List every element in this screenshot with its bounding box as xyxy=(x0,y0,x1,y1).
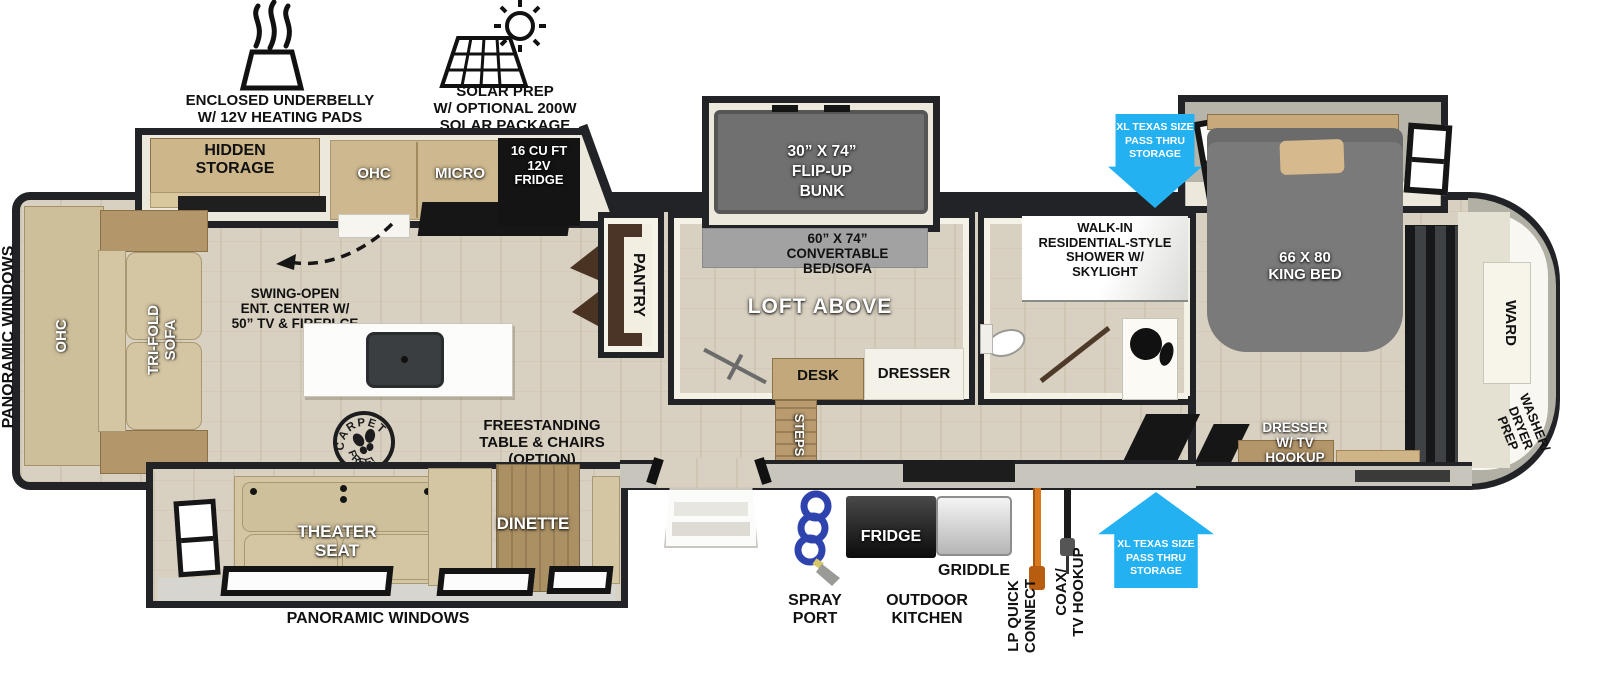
spray-port-label: SPRAY PORT xyxy=(770,592,860,628)
coax-label: COAX/ TV HOOKUP xyxy=(1054,532,1094,652)
entry-step-1 xyxy=(674,502,748,516)
micro-label: MICRO xyxy=(418,166,502,183)
theater-line2: SEAT xyxy=(282,541,392,560)
island-faucet xyxy=(401,356,408,363)
coax-line2: TV HOOKUP xyxy=(1071,532,1088,652)
sofa-back xyxy=(98,250,126,432)
pantry-label: PANTRY xyxy=(623,225,647,345)
trifold-line1: TRI-FOLD xyxy=(146,265,163,415)
slideout-side-window xyxy=(173,499,220,578)
swing-arrow-icon xyxy=(268,216,398,278)
pass-thru-line3: STORAGE xyxy=(1098,565,1214,579)
swing-line1: SWING-OPEN xyxy=(205,286,385,301)
dresser-tv-label: DRESSER W/ TV HOOKUP xyxy=(1235,420,1355,465)
pass-thru-line2: PASS THRU xyxy=(1098,552,1214,566)
panoramic-windows-left-label: PANORAMIC WINDOWS xyxy=(0,222,20,452)
sofa-end-table-top xyxy=(100,210,208,252)
loft-above-label: LOFT ABOVE xyxy=(735,295,905,319)
panoramic-window-3 xyxy=(547,566,614,594)
heating-pads-icon xyxy=(222,0,322,95)
bunk-line2: FLIP-UP xyxy=(752,162,892,182)
outdoor-fridge-label: FRIDGE xyxy=(848,528,934,546)
shower-line2: RESIDENTIAL-STYLE xyxy=(1026,236,1184,251)
convertible-line1: 60” X 74” xyxy=(740,231,935,246)
freestanding-line2: TABLE & CHAIRS xyxy=(457,435,627,452)
king-bed-label: 66 X 80 KING BED xyxy=(1240,250,1370,284)
bunk-line3: BUNK xyxy=(752,182,892,202)
underbelly-label: ENCLOSED UNDERBELLY W/ 12V HEATING PADS xyxy=(160,93,400,127)
freestanding-line1: FREESTANDING xyxy=(457,418,627,435)
bedroom-window-right xyxy=(1404,123,1453,196)
dresser-tv-line2: W/ TV xyxy=(1235,435,1355,450)
pass-thru-line3: STORAGE xyxy=(1108,148,1202,162)
cupholder-3 xyxy=(340,496,347,503)
fridge-line2: 12V xyxy=(498,159,580,174)
king-line1: 66 X 80 xyxy=(1240,250,1370,267)
loft-dresser-label: DRESSER xyxy=(866,366,962,383)
ent-center-doors-icon xyxy=(568,246,600,334)
fridge-line1: 16 CU FT xyxy=(498,144,580,159)
outdoor-fridge xyxy=(846,496,936,558)
underbelly-line1: ENCLOSED UNDERBELLY xyxy=(160,93,400,110)
coax-line1: COAX/ xyxy=(1054,532,1071,652)
underbelly-line2: W/ 12V HEATING PADS xyxy=(160,110,400,127)
outdoor-kitchen-line1: OUTDOOR xyxy=(862,592,992,610)
lp-line2: CONNECT xyxy=(1023,541,1040,685)
cupholder-1 xyxy=(250,488,257,495)
lp-line1: LP QUICK xyxy=(1006,541,1023,685)
solar-line2: W/ OPTIONAL 200W xyxy=(410,101,600,118)
shower-label: WALK-IN RESIDENTIAL-STYLE SHOWER W/ SKYL… xyxy=(1026,221,1184,279)
king-line2: KING BED xyxy=(1240,267,1370,284)
pass-thru-line1: XL TEXAS SIZE xyxy=(1108,121,1202,135)
bed-pillow xyxy=(1279,139,1344,175)
fridge-label: 16 CU FT 12V FRIDGE xyxy=(498,144,580,188)
dresser-tv-line1: DRESSER xyxy=(1235,420,1355,435)
hidden-storage-label: HIDDEN STORAGE xyxy=(155,142,315,178)
pass-thru-line2: PASS THRU xyxy=(1108,135,1202,149)
pantry-shelf-side xyxy=(608,228,624,342)
ohc-kitchen-label: OHC xyxy=(334,166,414,183)
trifold-sofa-label: TRI-FOLD SOFA xyxy=(146,265,180,415)
spray-line1: SPRAY xyxy=(770,592,860,610)
dinette-label: DINETTE xyxy=(468,514,598,533)
outdoor-kitchen-label: OUTDOOR KITCHEN xyxy=(862,592,992,628)
theater-seat-label: THEATER SEAT xyxy=(282,522,392,560)
pass-thru-arrow-bottom: XL TEXAS SIZE PASS THRU STORAGE xyxy=(1098,492,1214,588)
solar-label: SOLAR PREP W/ OPTIONAL 200W SOLAR PACKAG… xyxy=(410,84,600,134)
lp-quick-connect-label: LP QUICK CONNECT xyxy=(1006,541,1046,685)
panoramic-windows-bottom-label: PANORAMIC WINDOWS xyxy=(250,610,506,628)
convertible-label: 60” X 74” CONVERTABLE BED/SOFA xyxy=(740,231,935,276)
rv-floorplan: ENCLOSED UNDERBELLY W/ 12V HEATING PADS … xyxy=(0,0,1600,685)
entry-steps xyxy=(664,488,758,548)
panoramic-window-2 xyxy=(437,568,536,596)
swing-line2: ENT. CENTER W/ xyxy=(205,301,385,316)
freestanding-label: FREESTANDING TABLE & CHAIRS (OPTION) xyxy=(457,418,627,468)
outdoor-kitchen-recess xyxy=(903,460,1015,482)
bunk-latch-1 xyxy=(772,105,798,112)
panoramic-window-1 xyxy=(220,566,393,596)
bunk-latch-2 xyxy=(824,105,850,112)
pass-thru-bottom-label: XL TEXAS SIZE PASS THRU STORAGE xyxy=(1098,538,1214,579)
pass-thru-top-label: XL TEXAS SIZE PASS THRU STORAGE xyxy=(1108,121,1202,162)
window-bar xyxy=(1412,157,1444,164)
hidden-line2: STORAGE xyxy=(155,160,315,178)
entry-opening xyxy=(656,458,760,488)
outdoor-kitchen-line2: KITCHEN xyxy=(862,610,992,628)
entry-step-2 xyxy=(672,522,750,536)
shower-line4: SKYLIGHT xyxy=(1026,265,1184,280)
shower-line1: WALK-IN xyxy=(1026,221,1184,236)
convertible-line2: CONVERTABLE xyxy=(740,246,935,261)
bedroom-closet xyxy=(1405,225,1463,467)
fridge-line3: FRIDGE xyxy=(498,173,580,188)
spray-port-hose-icon xyxy=(786,486,846,586)
hidden-line1: HIDDEN xyxy=(155,142,315,160)
griddle xyxy=(936,496,1012,556)
theater-line1: THEATER xyxy=(282,522,392,541)
solar-prep-icon xyxy=(436,0,551,90)
bunk-line1: 30” X 74” xyxy=(752,142,892,162)
bunk-label: 30” X 74” FLIP-UP BUNK xyxy=(752,142,892,202)
toilet-tank xyxy=(980,324,993,354)
spray-line2: PORT xyxy=(770,610,860,628)
pass-thru-line1: XL TEXAS SIZE xyxy=(1098,538,1214,552)
cupholder-2 xyxy=(340,485,347,492)
window-bar xyxy=(181,536,213,543)
solar-line1: SOLAR PREP xyxy=(410,84,600,101)
trifold-line2: SOFA xyxy=(163,265,180,415)
ohc-rear-label: OHC xyxy=(54,306,74,366)
ward-label: WARD xyxy=(1496,268,1518,378)
vanity-sink xyxy=(1130,328,1162,360)
desk-label: DESK xyxy=(775,368,861,385)
convertible-line3: BED/SOFA xyxy=(740,261,935,276)
shower-line3: SHOWER W/ xyxy=(1026,250,1184,265)
bedroom-wall-slot xyxy=(1355,470,1450,482)
